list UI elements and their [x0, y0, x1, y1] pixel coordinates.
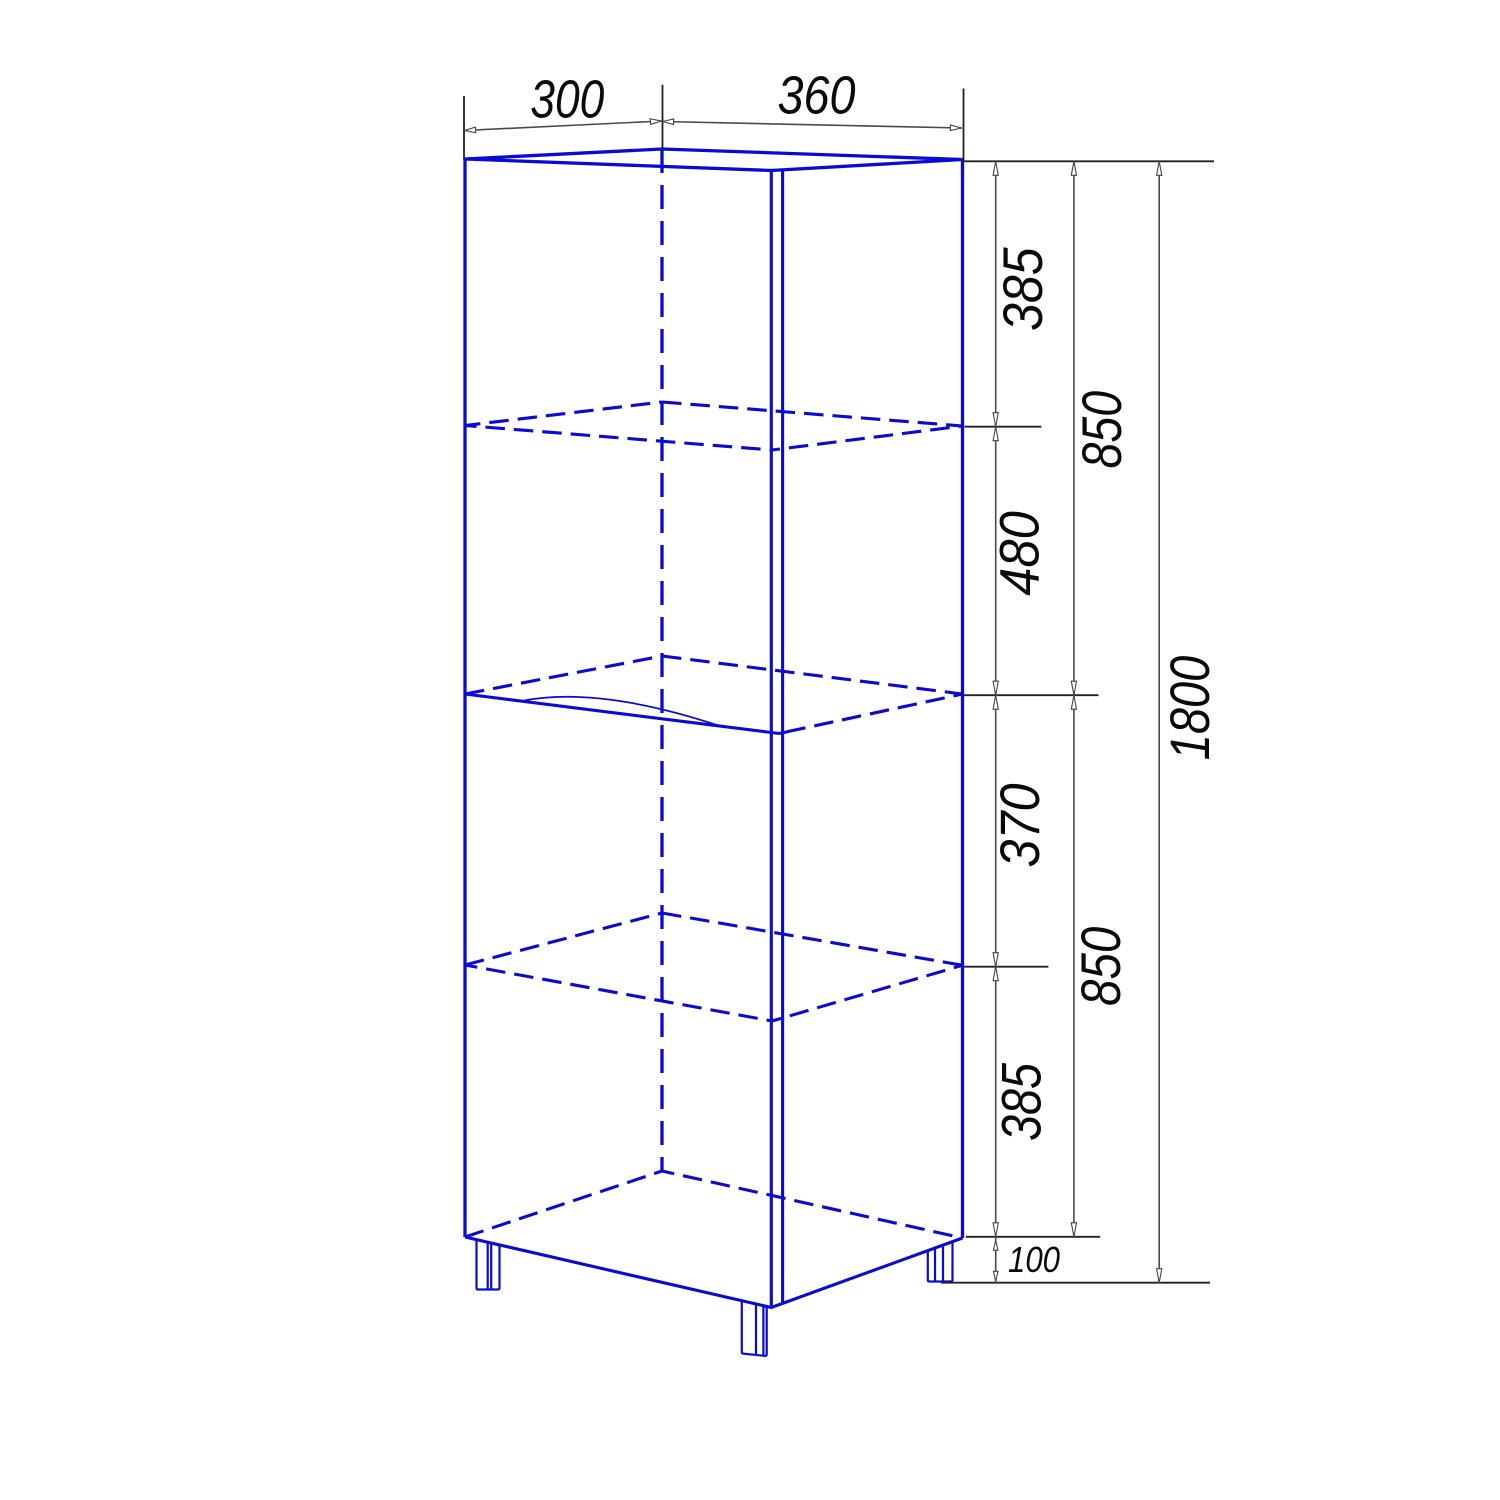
- svg-text:850: 850: [1070, 391, 1133, 469]
- svg-text:385: 385: [990, 1062, 1053, 1141]
- svg-text:360: 360: [778, 66, 856, 126]
- svg-text:480: 480: [987, 511, 1050, 596]
- svg-text:100: 100: [1008, 1239, 1060, 1280]
- svg-text:1800: 1800: [1158, 656, 1221, 761]
- svg-text:370: 370: [988, 784, 1051, 868]
- svg-text:385: 385: [991, 247, 1054, 331]
- svg-text:300: 300: [530, 70, 604, 130]
- svg-text:850: 850: [1069, 927, 1132, 1006]
